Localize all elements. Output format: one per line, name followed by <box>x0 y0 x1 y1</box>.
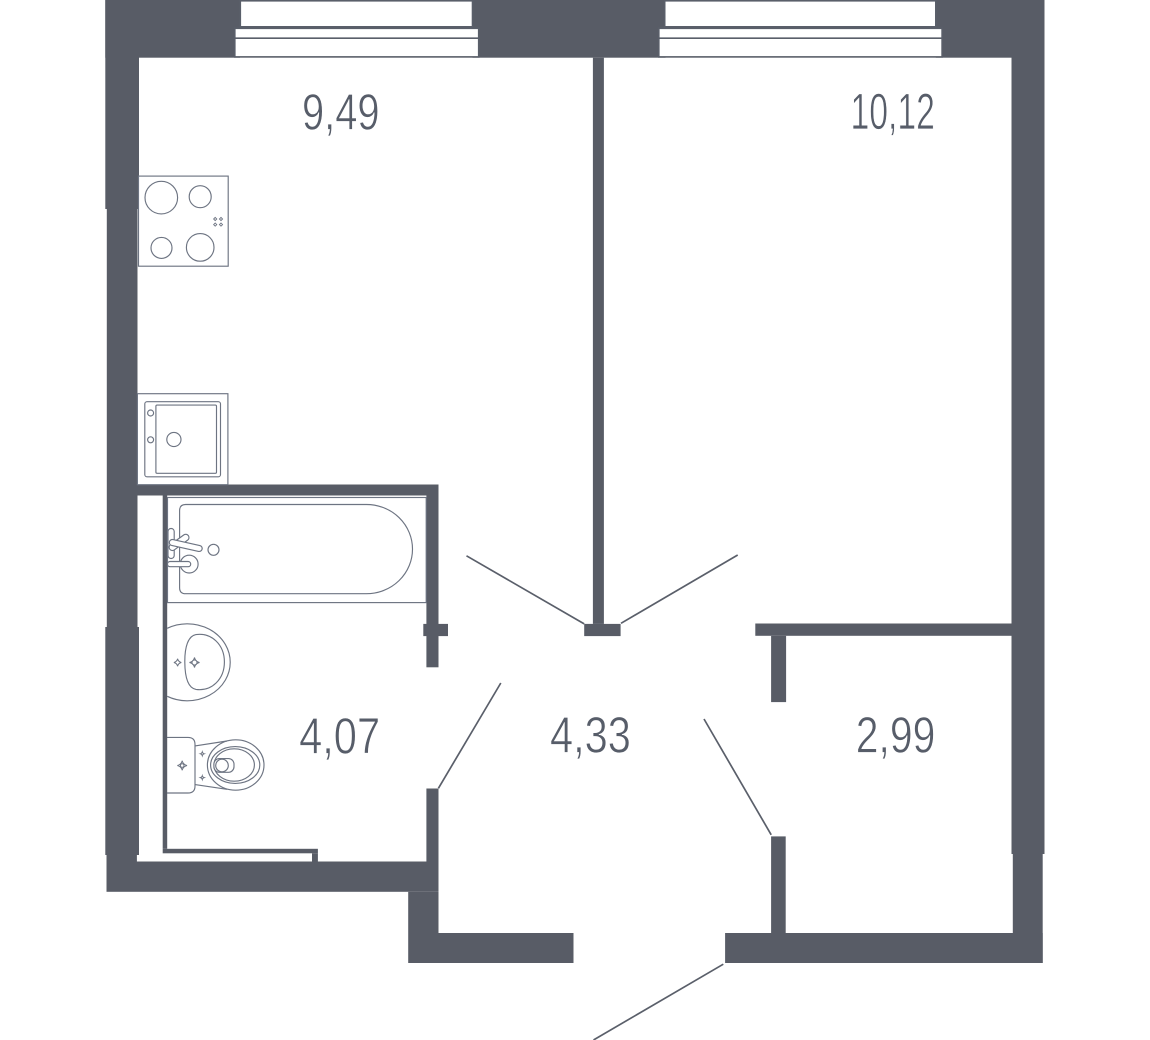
svg-text:4,07: 4,07 <box>299 708 380 765</box>
svg-text:9,49: 9,49 <box>302 83 380 140</box>
svg-text:4,33: 4,33 <box>550 707 631 764</box>
svg-text:2,99: 2,99 <box>856 707 936 764</box>
svg-text:10,12: 10,12 <box>851 83 935 140</box>
